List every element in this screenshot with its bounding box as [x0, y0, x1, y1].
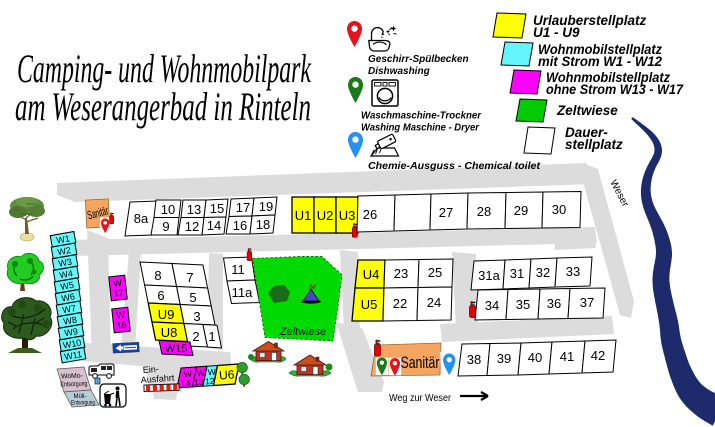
svg-text:24: 24	[427, 295, 441, 310]
svg-text:U2: U2	[317, 208, 334, 223]
svg-text:Waschmaschine-Trockner: Waschmaschine-Trockner	[361, 111, 482, 122]
svg-text:13: 13	[187, 202, 201, 217]
svg-text:Washing Maschine - Dryer: Washing Maschine - Dryer	[361, 123, 480, 134]
svg-text:39: 39	[497, 351, 511, 366]
svg-text:31a: 31a	[478, 268, 500, 283]
svg-text:12: 12	[185, 219, 199, 234]
svg-text:30: 30	[552, 202, 566, 217]
svg-text:15: 15	[210, 201, 224, 216]
svg-text:U8: U8	[161, 325, 178, 340]
svg-text:40: 40	[528, 350, 542, 365]
svg-text:8a: 8a	[134, 211, 149, 226]
svg-text:14: 14	[181, 378, 191, 389]
svg-text:Zeltwiese: Zeltwiese	[279, 326, 326, 338]
svg-text:Chemie-Ausguss - Chemical toil: Chemie-Ausguss - Chemical toilet	[368, 161, 541, 172]
svg-text:Weser: Weser	[607, 178, 631, 209]
svg-text:Geschirr-Spülbecken: Geschirr-Spülbecken	[368, 54, 469, 65]
svg-text:2: 2	[192, 329, 199, 344]
svg-text:28: 28	[477, 204, 491, 219]
svg-text:WoMo-: WoMo-	[61, 373, 83, 381]
svg-text:41: 41	[560, 349, 574, 364]
svg-text:3: 3	[193, 309, 200, 324]
svg-text:Dishwashing: Dishwashing	[368, 66, 430, 77]
svg-text:33: 33	[566, 264, 580, 279]
svg-text:38: 38	[467, 352, 481, 367]
svg-text:Sanitär: Sanitär	[401, 354, 440, 372]
svg-text:14: 14	[207, 218, 221, 233]
svg-text:42: 42	[591, 348, 605, 363]
svg-text:Weg zur Weser: Weg zur Weser	[389, 392, 451, 404]
svg-text:8: 8	[154, 268, 161, 283]
svg-text:5: 5	[189, 290, 196, 305]
svg-text:16: 16	[233, 218, 247, 233]
svg-text:36: 36	[547, 296, 561, 311]
svg-text:31: 31	[510, 266, 524, 281]
svg-text:10: 10	[161, 202, 175, 217]
svg-text:11: 11	[231, 262, 245, 277]
svg-text:Müll-: Müll-	[74, 394, 87, 400]
svg-text:mit Strom W1 - W12: mit Strom W1 - W12	[538, 54, 662, 69]
svg-text:27: 27	[439, 205, 453, 220]
svg-text:13: 13	[194, 377, 204, 388]
svg-text:26: 26	[363, 207, 377, 222]
svg-text:U4: U4	[363, 267, 380, 282]
svg-text:6: 6	[157, 288, 164, 303]
svg-text:37: 37	[580, 295, 594, 310]
svg-text:19: 19	[259, 199, 273, 214]
svg-text:ohne Strom W13 - W17: ohne Strom W13 - W17	[546, 82, 684, 97]
svg-text:U1 - U9: U1 - U9	[533, 25, 580, 40]
svg-text:7: 7	[186, 270, 193, 285]
svg-text:am Weserangerbad in Rinteln: am Weserangerbad in Rinteln	[15, 84, 311, 129]
svg-text:U3: U3	[339, 208, 356, 223]
svg-text:W15: W15	[165, 343, 188, 355]
svg-text:U5: U5	[361, 297, 378, 312]
svg-text:U1: U1	[295, 208, 312, 223]
svg-text:9: 9	[162, 219, 169, 234]
svg-text:29: 29	[514, 203, 528, 218]
svg-text:Zeltwiese: Zeltwiese	[556, 103, 618, 118]
svg-text:32: 32	[536, 265, 550, 280]
svg-text:Entsorgung: Entsorgung	[60, 381, 87, 389]
svg-text:Entsorgung: Entsorgung	[71, 401, 95, 407]
svg-text:34: 34	[485, 298, 499, 313]
svg-text:22: 22	[393, 296, 407, 311]
svg-text:1: 1	[208, 329, 215, 344]
svg-text:U9: U9	[158, 307, 175, 322]
svg-text:35: 35	[516, 297, 530, 312]
svg-text:23: 23	[394, 266, 408, 281]
svg-text:17: 17	[113, 287, 124, 298]
svg-text:17: 17	[236, 200, 250, 215]
svg-text:18: 18	[256, 217, 270, 232]
svg-text:stellplatz: stellplatz	[565, 137, 623, 152]
svg-text:11a: 11a	[232, 285, 253, 300]
svg-text:25: 25	[428, 265, 442, 280]
svg-text:U6: U6	[219, 367, 236, 382]
svg-text:16: 16	[116, 319, 127, 330]
